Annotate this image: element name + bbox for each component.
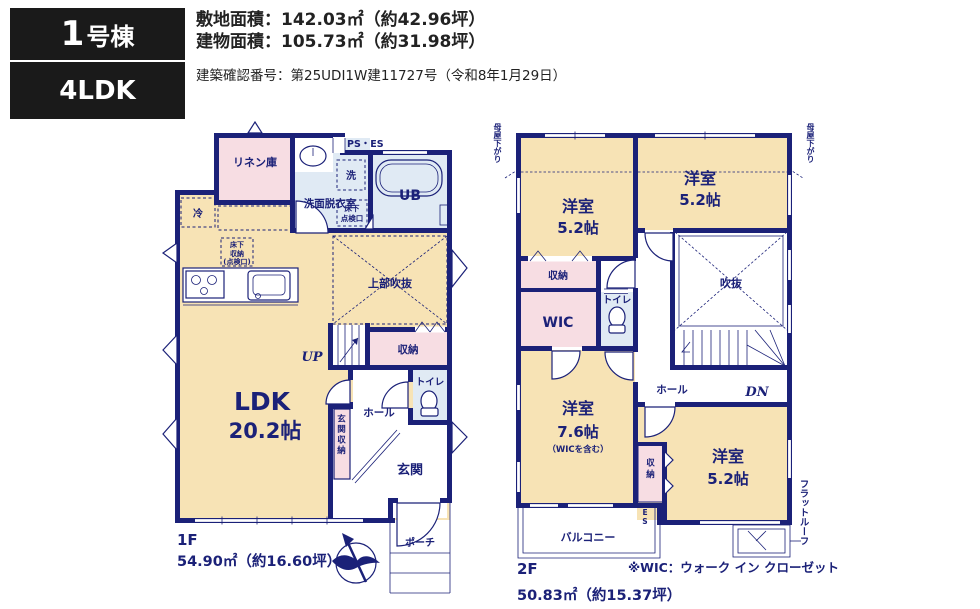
- moya-sagari-right-label: 母屋下がり: [806, 123, 814, 185]
- unit-suffix: 号棟: [86, 17, 134, 52]
- window: [517, 462, 521, 492]
- layout-type: 4LDK: [10, 62, 185, 119]
- dn-label: DN: [744, 385, 769, 400]
- hall-label-2f: ホール: [656, 384, 688, 396]
- void-label: 吹抜: [720, 276, 743, 290]
- floor1-plan: リネン庫 冷 洗 洗面脱衣室 PS・ES UB 床下 点検口 床下 収納 (点検…: [150, 120, 490, 609]
- floorplan-page: 1号棟 4LDK 敷地面積：142.03㎡（約42.96坪） 建物面積：105.…: [0, 0, 980, 609]
- ldk-size-label: 20.2帖: [229, 419, 302, 443]
- ps-duct: [333, 137, 345, 153]
- kitchen-counter: [183, 268, 298, 305]
- window: [517, 178, 521, 213]
- entrance-label: 玄関: [397, 462, 423, 478]
- flat-roof-box: [733, 525, 801, 557]
- room-se-size: 5.2帖: [707, 470, 749, 488]
- toilet-label: トイレ: [416, 377, 445, 388]
- room-sw-size: 7.6帖: [557, 423, 599, 441]
- unit-name: 1号棟: [10, 8, 185, 62]
- washbasin-icon: [300, 146, 326, 166]
- window: [788, 250, 792, 280]
- moya-sagari-left-label: 母屋下がり: [493, 123, 501, 185]
- window: [788, 440, 792, 478]
- toilet-icon-2f: [609, 307, 625, 333]
- toilet-label-2f: トイレ: [603, 295, 632, 306]
- room-sw-label: 洋室: [562, 399, 594, 418]
- window: [788, 305, 792, 333]
- flat-roof-label: フラットルーフ: [798, 479, 808, 561]
- ub-label: UB: [399, 188, 421, 204]
- window: [568, 504, 613, 508]
- fridge-label: 冷: [193, 207, 203, 220]
- room-ne-size: 5.2帖: [679, 191, 721, 209]
- stairs-area-2f: [675, 330, 787, 368]
- ldk-label: LDK: [234, 387, 292, 416]
- storage-s-label: 収納: [645, 458, 654, 500]
- toilet-icon: [421, 391, 438, 416]
- floor2-plan: 洋室 5.2帖 洋室 5.2帖 吹抜 ホール DN 収納 WIC トイレ 洋室 …: [490, 120, 830, 609]
- ps-es-label: PS・ES: [347, 139, 384, 150]
- room-sw-note: （WICを含む）: [547, 444, 608, 455]
- hatch-label-2: 点検口: [341, 213, 364, 223]
- porch-label: ポーチ: [405, 536, 435, 549]
- es-label: ES: [641, 508, 649, 526]
- storage-hatch-label-3: (点検口): [223, 257, 250, 266]
- site-area-text: 敷地面積：142.03㎡（約42.96坪）: [196, 9, 566, 31]
- toilet-door-2f: [604, 289, 628, 294]
- building-area-text: 建物面積：105.73㎡（約31.98坪）: [196, 31, 566, 53]
- storage-hatch-label-2: 収納: [230, 249, 244, 258]
- window: [788, 175, 792, 215]
- unit-number: 1: [61, 17, 85, 51]
- linen-label: リネン庫: [233, 155, 277, 169]
- void-above-label: 上部吹抜: [368, 276, 413, 290]
- hatch-label-1: 床下: [345, 203, 360, 213]
- wic-label: WIC: [543, 315, 574, 331]
- room-ne-label: 洋室: [684, 169, 716, 188]
- entrance-storage-label: 玄関収納: [336, 414, 345, 478]
- room-se-label: 洋室: [712, 447, 744, 466]
- wic-note: ※WIC：ウォーク イン クローゼット: [628, 560, 839, 575]
- ub-window: [383, 151, 427, 155]
- balcony-label: バルコニー: [561, 531, 616, 544]
- header-texts: 敷地面積：142.03㎡（約42.96坪） 建物面積：105.73㎡（約31.9…: [196, 9, 566, 84]
- hall-label: ホール: [363, 407, 395, 419]
- up-label: UP: [301, 350, 323, 365]
- washer-label: 洗: [346, 169, 356, 182]
- window: [517, 385, 521, 410]
- room-nw-label: 洋室: [562, 197, 594, 216]
- storage-label: 収納: [398, 343, 419, 356]
- floor2-area-label: 50.83㎡（約15.37坪）: [517, 586, 681, 604]
- window: [530, 504, 558, 508]
- unit-badge: 1号棟 4LDK: [10, 8, 185, 119]
- floor1-area-label: 54.90㎡（約16.60坪）: [177, 552, 341, 570]
- linen-room: [217, 135, 293, 203]
- floor1-label: 1F: [177, 531, 198, 549]
- confirmation-number-text: 建築確認番号：第25UDI1W建11727号（令和8年1月29日）: [196, 64, 566, 84]
- storage-hatch-label-1: 床下: [230, 240, 244, 249]
- window: [700, 521, 780, 525]
- room-nw-size: 5.2帖: [557, 219, 599, 237]
- floor2-label: 2F: [517, 560, 538, 578]
- storage-n-label: 収納: [548, 269, 568, 282]
